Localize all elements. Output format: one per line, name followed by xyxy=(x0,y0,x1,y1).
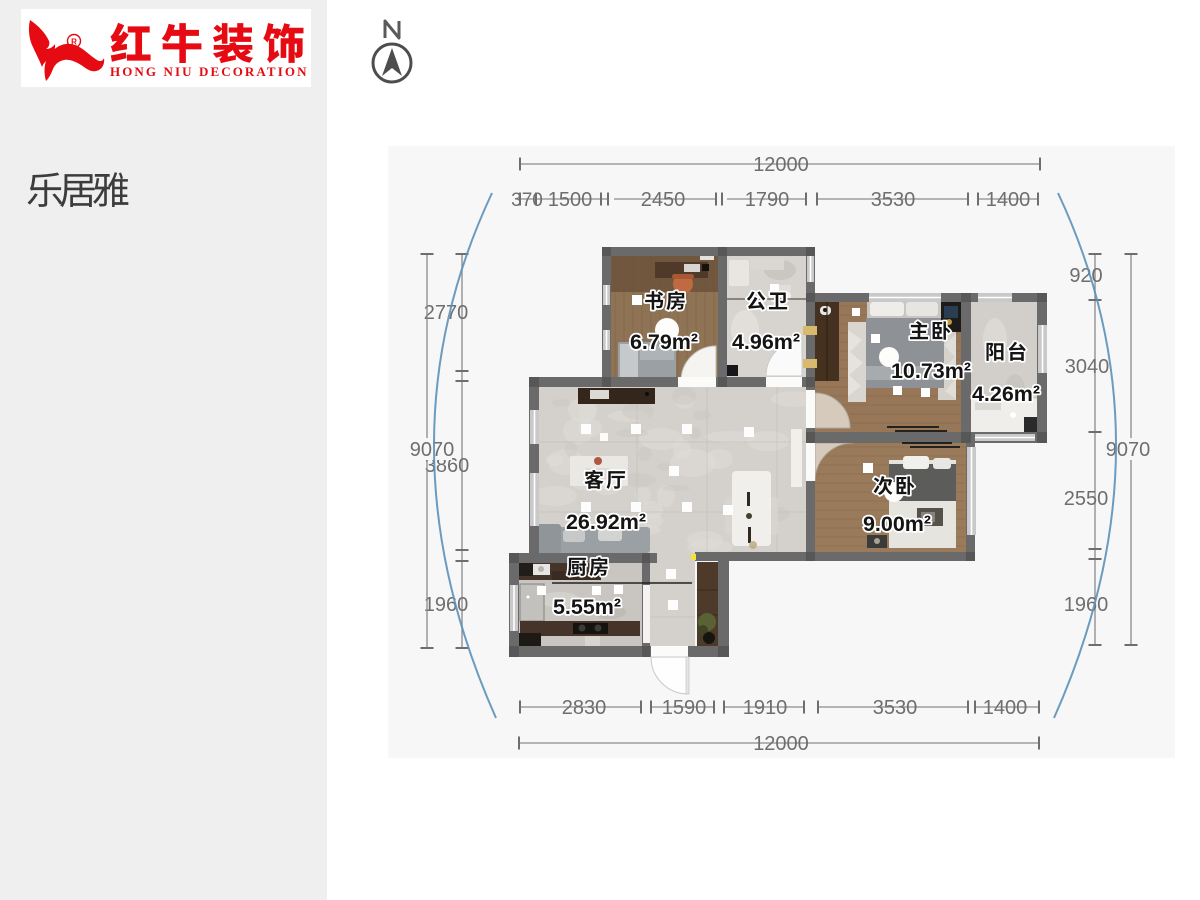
svg-text:1400: 1400 xyxy=(983,697,1028,719)
svg-text:3530: 3530 xyxy=(873,697,918,719)
svg-text:R: R xyxy=(71,38,77,47)
svg-text:1790: 1790 xyxy=(745,189,790,211)
svg-text:2830: 2830 xyxy=(562,697,607,719)
svg-text:2450: 2450 xyxy=(641,189,686,211)
svg-text:10.73m²: 10.73m² xyxy=(891,359,971,383)
svg-text:1400: 1400 xyxy=(986,189,1031,211)
svg-text:2550: 2550 xyxy=(1064,488,1109,510)
svg-text:9.00m²: 9.00m² xyxy=(863,512,931,536)
svg-text:26.92m²: 26.92m² xyxy=(566,510,646,534)
svg-text:2770: 2770 xyxy=(424,302,469,324)
svg-text:1500: 1500 xyxy=(548,189,593,211)
svg-text:4.96m²: 4.96m² xyxy=(732,330,800,354)
svg-text:6.79m²: 6.79m² xyxy=(630,330,698,354)
svg-text:370: 370 xyxy=(511,190,543,211)
svg-text:9070: 9070 xyxy=(1106,439,1151,461)
svg-text:12000: 12000 xyxy=(753,733,809,755)
svg-text:920: 920 xyxy=(1069,265,1102,287)
svg-text:1910: 1910 xyxy=(743,697,788,719)
svg-text:12000: 12000 xyxy=(753,154,809,176)
svg-text:1960: 1960 xyxy=(1064,594,1109,616)
svg-text:3530: 3530 xyxy=(871,189,916,211)
svg-text:HONG NIU DECORATION: HONG NIU DECORATION xyxy=(110,64,309,79)
svg-text:3040: 3040 xyxy=(1065,356,1110,378)
svg-text:1960: 1960 xyxy=(424,594,469,616)
svg-text:4.26m²: 4.26m² xyxy=(972,382,1040,406)
svg-text:5.55m²: 5.55m² xyxy=(553,595,621,619)
svg-text:9070: 9070 xyxy=(410,439,455,461)
svg-text:1590: 1590 xyxy=(662,697,707,719)
